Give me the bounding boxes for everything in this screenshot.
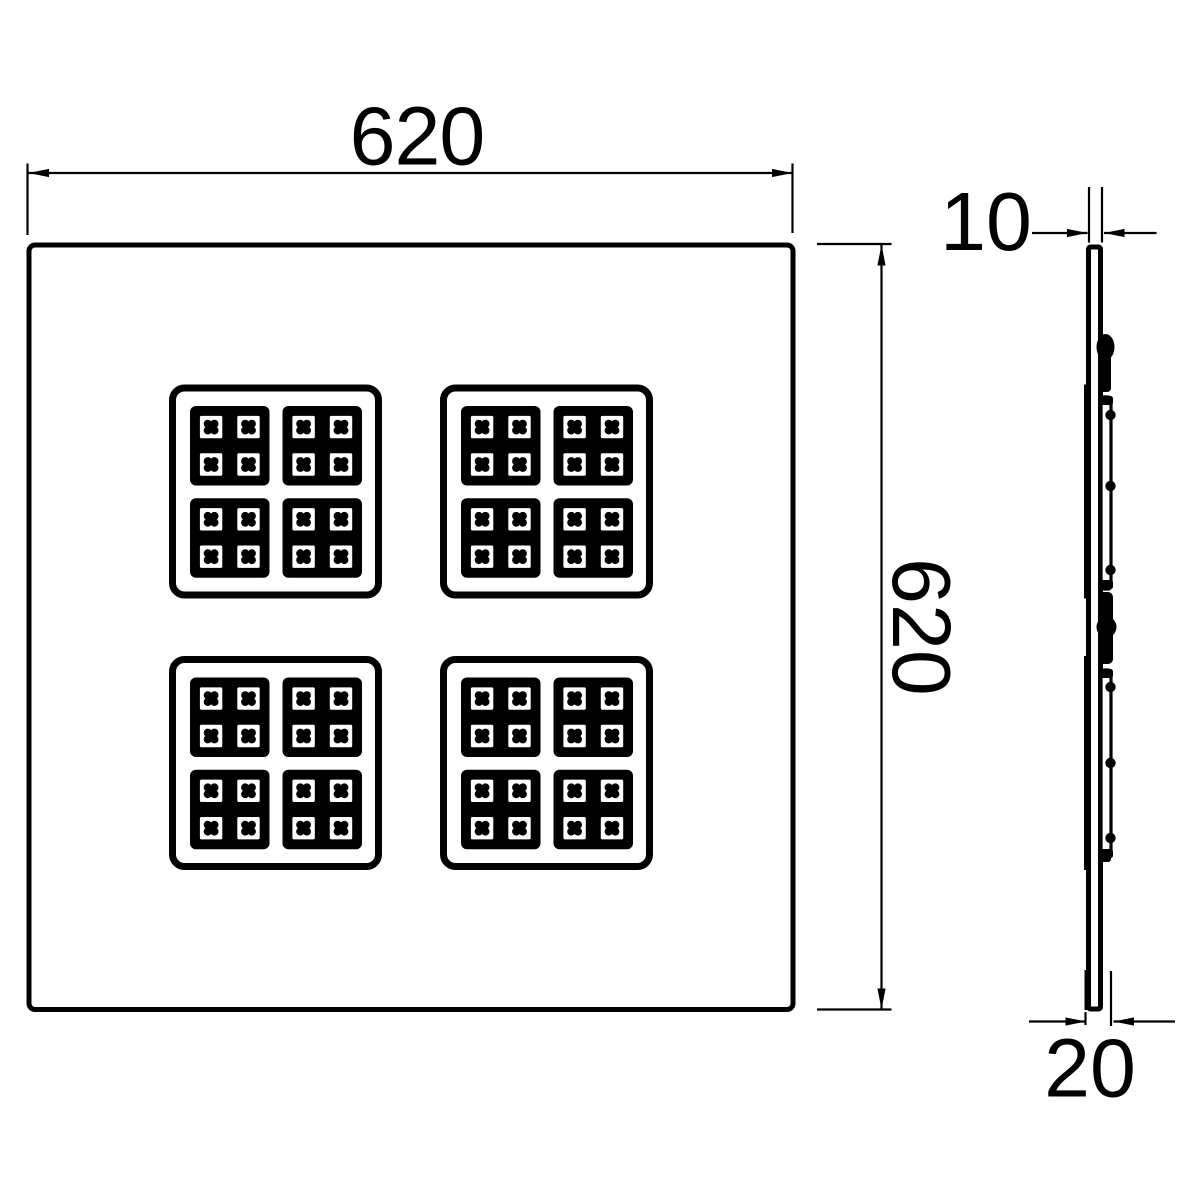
svg-text:620: 620 (875, 558, 967, 696)
svg-text:20: 20 (1044, 1023, 1136, 1115)
svg-text:620: 620 (350, 91, 485, 183)
svg-text:10: 10 (940, 176, 1032, 268)
